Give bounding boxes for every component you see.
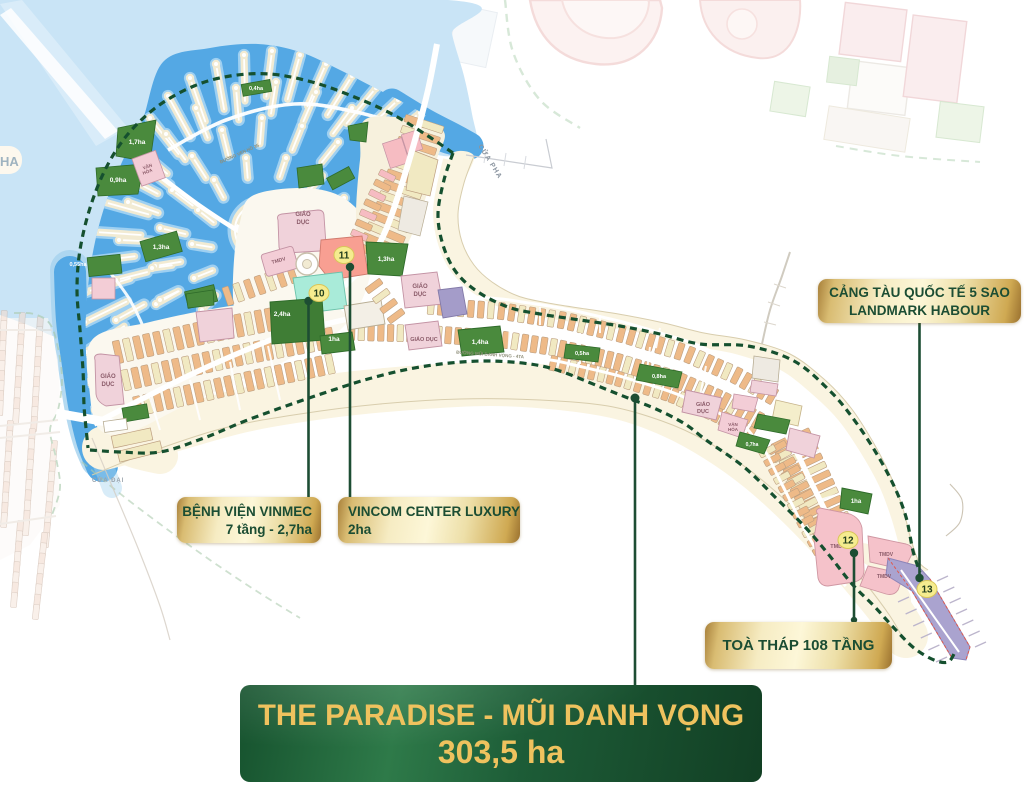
svg-text:10: 10 [313, 289, 325, 300]
svg-text:11: 11 [339, 251, 350, 262]
svg-text:0,7ha: 0,7ha [746, 442, 759, 448]
svg-text:0,5ha: 0,5ha [575, 351, 590, 357]
svg-text:GIÁO: GIÁO [295, 211, 311, 218]
svg-text:0,4ha: 0,4ha [249, 86, 264, 92]
svg-text:2,4ha: 2,4ha [274, 311, 291, 318]
svg-text:12: 12 [842, 536, 854, 547]
svg-text:GIÁO: GIÁO [412, 283, 428, 290]
svg-text:TMDV: TMDV [877, 574, 892, 580]
svg-text:1ha: 1ha [851, 499, 862, 505]
svg-text:GIÁO DỤC: GIÁO DỤC [410, 336, 438, 343]
svg-text:HÓA: HÓA [728, 425, 739, 432]
svg-text:0,9ha: 0,9ha [110, 177, 127, 184]
svg-text:1,7ha: 1,7ha [129, 139, 146, 146]
svg-text:CỬA ĐẠI: CỬA ĐẠI [92, 477, 124, 484]
svg-text:GIÁO: GIÁO [696, 401, 711, 408]
svg-text:TMDV: TMDV [879, 552, 894, 558]
svg-text:CỬA PHA: CỬA PHA [476, 142, 505, 180]
svg-text:13: 13 [921, 585, 933, 596]
svg-text:1,4ha: 1,4ha [472, 339, 489, 346]
svg-text:0,55ha: 0,55ha [69, 262, 87, 268]
svg-text:DỤC: DỤC [297, 220, 311, 226]
svg-text:DỤC: DỤC [697, 409, 709, 415]
svg-text:1,3ha: 1,3ha [153, 244, 170, 251]
svg-text:DỤC: DỤC [414, 292, 428, 298]
svg-text:HA: HA [0, 154, 19, 169]
svg-text:1ha: 1ha [328, 336, 340, 343]
svg-text:GIÁO: GIÁO [100, 373, 116, 380]
svg-text:DỤC: DỤC [102, 382, 116, 388]
svg-text:1,3ha: 1,3ha [378, 256, 395, 263]
svg-text:0,8ha: 0,8ha [652, 374, 667, 380]
